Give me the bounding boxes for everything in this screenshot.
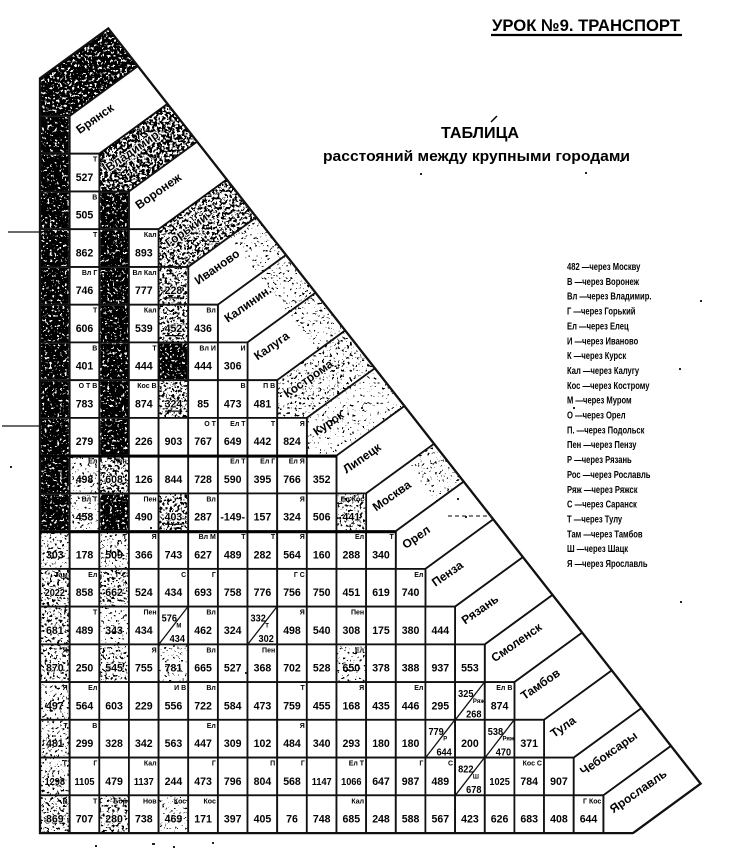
svg-text:Т: Т	[271, 421, 276, 428]
svg-text:168: 168	[342, 700, 360, 712]
svg-text:226: 226	[135, 436, 153, 448]
svg-text:М —через Муром: М —через Муром	[567, 395, 632, 406]
svg-text:Ел: Ел	[414, 685, 423, 692]
svg-text:423: 423	[461, 813, 479, 825]
svg-text:Кос —через Кострому: Кос —через Кострому	[567, 380, 650, 391]
svg-text:352: 352	[313, 473, 331, 485]
svg-text:Вл —через Владимир.: Вл —через Владимир.	[567, 291, 651, 302]
svg-text:748: 748	[313, 813, 331, 825]
svg-text:824: 824	[283, 436, 301, 448]
svg-text:987: 987	[402, 775, 420, 787]
svg-text:Я: Я	[152, 534, 157, 541]
svg-text:Я: Я	[300, 610, 305, 617]
svg-text:473: 473	[194, 775, 212, 787]
svg-text:Ел: Ел	[355, 534, 364, 541]
svg-text:Ел В: Ел В	[496, 685, 512, 692]
svg-text:Т: Т	[63, 723, 68, 730]
svg-text:388: 388	[402, 662, 420, 674]
svg-text:844: 844	[165, 473, 183, 485]
svg-text:В: В	[92, 345, 97, 352]
svg-text:368: 368	[254, 662, 272, 674]
svg-text:903: 903	[165, 436, 183, 448]
svg-text:Вл Г: Вл Г	[82, 270, 97, 277]
svg-text:Пен: Пен	[262, 647, 275, 654]
svg-text:937: 937	[431, 662, 449, 674]
svg-text:Кос В: Кос В	[137, 383, 156, 390]
svg-text:434: 434	[165, 587, 183, 599]
svg-text:228: 228	[165, 285, 183, 297]
svg-text:473: 473	[254, 700, 272, 712]
svg-text:Ел Т: Ел Т	[230, 459, 246, 466]
svg-text:Т: Т	[271, 534, 276, 541]
svg-text:И —через Иваново: И —через Иваново	[567, 335, 639, 346]
svg-text:743: 743	[165, 549, 183, 561]
svg-text:505: 505	[76, 209, 94, 221]
svg-text:Ел: Ел	[88, 572, 97, 579]
svg-text:Нов: Нов	[143, 798, 157, 805]
svg-text:Вл: Вл	[206, 647, 216, 654]
svg-text:279: 279	[76, 436, 94, 448]
svg-text:250: 250	[76, 662, 94, 674]
svg-text:Т: Т	[390, 534, 395, 541]
svg-text:693: 693	[194, 587, 212, 599]
svg-text:Ел: Ел	[355, 647, 364, 654]
svg-text:484: 484	[283, 738, 301, 750]
svg-text:Ел Т: Ел Т	[230, 421, 246, 428]
svg-text:306: 306	[224, 360, 242, 372]
svg-text:309: 309	[224, 738, 242, 750]
svg-text:76: 76	[286, 813, 298, 825]
svg-text:И В: И В	[174, 685, 186, 692]
svg-text:Г: Г	[64, 610, 68, 617]
svg-text:Кал: Кал	[144, 761, 157, 768]
svg-text:395: 395	[254, 473, 272, 485]
svg-text:Р —через Рязань: Р —через Рязань	[567, 454, 632, 465]
svg-text:758: 758	[224, 587, 242, 599]
svg-text:П: П	[270, 761, 275, 768]
svg-text:Г —через Горький: Г —через Горький	[567, 306, 635, 317]
svg-text:722: 722	[194, 700, 212, 712]
svg-text:435: 435	[372, 700, 390, 712]
svg-text:В —через Воронеж: В —через Воронеж	[567, 276, 640, 287]
svg-text:Вл: Вл	[206, 685, 216, 692]
svg-text:Я: Я	[152, 647, 157, 654]
svg-text:759: 759	[283, 700, 301, 712]
svg-text:Я: Я	[300, 723, 305, 730]
svg-text:869: 869	[46, 813, 64, 825]
svg-text:1025: 1025	[489, 776, 510, 787]
svg-text:644: 644	[580, 813, 598, 825]
svg-text:Т: Т	[241, 534, 246, 541]
svg-text:К —через Курск: К —через Курск	[567, 350, 627, 361]
svg-text:401: 401	[76, 360, 94, 372]
svg-text:444: 444	[135, 360, 153, 372]
svg-text:Я —через Ярославль: Я —через Ярославль	[567, 558, 648, 569]
svg-text:441: 441	[342, 511, 360, 523]
svg-text:157: 157	[254, 511, 272, 523]
svg-text:Т —через Тулу: Т —через Тулу	[567, 513, 622, 524]
svg-text:378: 378	[372, 662, 390, 674]
svg-text:490: 490	[135, 511, 153, 523]
svg-text:287: 287	[194, 511, 212, 523]
svg-text:756: 756	[283, 587, 301, 599]
svg-text:280: 280	[105, 813, 123, 825]
svg-text:Г: Г	[301, 761, 305, 768]
svg-text:160: 160	[313, 549, 331, 561]
svg-text:455: 455	[313, 700, 331, 712]
svg-text:Т: Т	[123, 534, 128, 541]
svg-text:665: 665	[194, 662, 212, 674]
svg-text:303: 303	[46, 549, 64, 561]
svg-text:408: 408	[550, 813, 568, 825]
svg-text:371: 371	[520, 738, 538, 750]
svg-text:Вл Кал: Вл Кал	[132, 270, 156, 277]
svg-text:Вл: Вл	[206, 308, 216, 315]
svg-text:738: 738	[135, 813, 153, 825]
svg-text:Т: Т	[93, 798, 98, 805]
svg-text:Пен: Пен	[143, 610, 156, 617]
svg-text:Вл Т: Вл Т	[82, 496, 98, 503]
svg-text:590: 590	[224, 473, 242, 485]
svg-text:178: 178	[76, 549, 94, 561]
svg-text:Ел Г: Ел Г	[260, 459, 275, 466]
svg-text:Ел: Ел	[207, 723, 216, 730]
svg-text:539: 539	[135, 323, 153, 335]
svg-text:Ел: Ел	[88, 685, 97, 692]
svg-text:804: 804	[254, 775, 272, 787]
svg-text:822: 822	[458, 764, 473, 775]
svg-text:Я: Я	[300, 496, 305, 503]
svg-text:Ряж: Ряж	[473, 699, 485, 705]
svg-text:489: 489	[224, 549, 242, 561]
svg-text:171: 171	[194, 813, 212, 825]
svg-text:1066: 1066	[341, 776, 361, 787]
svg-text:Кал —через Калугу: Кал —через Калугу	[567, 365, 639, 376]
svg-text:777: 777	[135, 285, 153, 297]
svg-text:405: 405	[254, 813, 272, 825]
svg-text:Кал: Кал	[144, 308, 157, 315]
svg-text:509: 509	[105, 549, 123, 561]
svg-text:482 —через Москву: 482 —через Москву	[567, 261, 640, 272]
svg-text:325: 325	[458, 689, 474, 700]
svg-text:293: 293	[342, 738, 360, 750]
svg-text:776: 776	[254, 587, 272, 599]
svg-text:553: 553	[461, 662, 479, 674]
svg-text:В: В	[63, 798, 68, 805]
svg-text:662: 662	[105, 587, 123, 599]
svg-text:858: 858	[76, 587, 94, 599]
svg-text:Я: Я	[300, 534, 305, 541]
svg-text:442: 442	[254, 436, 272, 448]
svg-text:564: 564	[283, 549, 301, 561]
svg-text:УРОК №9. ТРАНСПОРТ: УРОК №9. ТРАНСПОРТ	[492, 16, 681, 35]
svg-text:746: 746	[76, 285, 94, 297]
svg-text:862: 862	[76, 247, 94, 259]
svg-text:расстояний между крупными го: расстояний между крупными городами	[323, 149, 630, 165]
svg-text:В: В	[240, 383, 245, 390]
svg-text:Г: Г	[212, 761, 216, 768]
svg-text:Т: Т	[93, 610, 98, 617]
svg-text:627: 627	[194, 549, 212, 561]
svg-text:Пен: Пен	[114, 459, 127, 466]
svg-text:П. —через Подольск: П. —через Подольск	[567, 424, 645, 435]
svg-text:Кос: Кос	[174, 798, 186, 805]
svg-text:180: 180	[372, 738, 390, 750]
svg-text:248: 248	[372, 813, 390, 825]
svg-text:626: 626	[491, 813, 509, 825]
svg-text:893: 893	[135, 247, 153, 259]
svg-text:Там: Там	[55, 572, 68, 579]
svg-text:576: 576	[162, 613, 177, 624]
svg-text:282: 282	[254, 549, 272, 561]
svg-text:606: 606	[76, 323, 94, 335]
svg-text:728: 728	[194, 473, 212, 485]
svg-text:175: 175	[372, 624, 390, 636]
svg-text:Кос: Кос	[204, 798, 216, 805]
svg-text:343: 343	[105, 624, 123, 636]
svg-text:О Т В: О Т В	[79, 383, 98, 390]
svg-text:П В: П В	[263, 383, 275, 390]
svg-text:Я: Я	[359, 685, 364, 692]
svg-text:В: В	[92, 195, 97, 202]
svg-text:Т: Т	[301, 685, 306, 692]
svg-text:Г С: Г С	[294, 572, 305, 579]
svg-text:126: 126	[135, 473, 153, 485]
svg-text:481: 481	[46, 738, 64, 750]
svg-text:498: 498	[283, 624, 301, 636]
svg-text:Ел: Ел	[414, 572, 423, 579]
svg-text:Ел —через Елец: Ел —через Елец	[567, 320, 629, 331]
svg-text:Кал: Кал	[351, 798, 364, 805]
svg-text:870: 870	[46, 662, 64, 674]
svg-text:489: 489	[76, 624, 94, 636]
svg-text:О —через Орел: О —через Орел	[567, 409, 626, 420]
svg-text:324: 324	[165, 398, 183, 410]
svg-text:567: 567	[431, 813, 449, 825]
svg-text:540: 540	[313, 624, 331, 636]
svg-text:588: 588	[402, 813, 420, 825]
svg-text:649: 649	[224, 436, 242, 448]
svg-text:Пен —через Пензу: Пен —через Пензу	[567, 439, 636, 450]
svg-text:740: 740	[402, 587, 420, 599]
svg-text:683: 683	[520, 813, 538, 825]
svg-text:498: 498	[76, 473, 94, 485]
svg-text:Ел Т: Ел Т	[349, 761, 365, 768]
svg-text:447: 447	[194, 738, 212, 750]
svg-text:564: 564	[76, 700, 94, 712]
svg-text:324: 324	[224, 624, 242, 636]
svg-text:299: 299	[76, 738, 94, 750]
svg-text:527: 527	[76, 172, 94, 184]
svg-text:С —через Саранск: С —через Саранск	[567, 499, 637, 510]
svg-text:Кос С: Кос С	[523, 761, 542, 768]
svg-text:568: 568	[283, 775, 301, 787]
svg-text:444: 444	[431, 624, 449, 636]
svg-text:397: 397	[224, 813, 242, 825]
svg-text:Пен: Пен	[143, 496, 156, 503]
svg-text:481: 481	[254, 398, 272, 410]
svg-text:Г С: Г С	[116, 572, 127, 579]
svg-text:Кал: Кал	[144, 232, 157, 239]
svg-text:Рос —через Рославль: Рос —через Рославль	[567, 469, 651, 480]
svg-text:506: 506	[313, 511, 331, 523]
svg-text:-149-: -149-	[220, 511, 245, 523]
svg-text:332: 332	[251, 613, 266, 624]
svg-text:Ряж: Ряж	[503, 737, 515, 743]
svg-text:489: 489	[431, 775, 449, 787]
svg-text:702: 702	[283, 662, 301, 674]
svg-text:В: В	[92, 723, 97, 730]
svg-text:О Т: О Т	[204, 421, 216, 428]
svg-text:528: 528	[313, 662, 331, 674]
svg-text:Вл М: Вл М	[199, 534, 216, 541]
svg-text:874: 874	[135, 398, 153, 410]
svg-text:328: 328	[105, 738, 123, 750]
svg-text:685: 685	[342, 813, 360, 825]
svg-text:Я: Я	[300, 421, 305, 428]
svg-text:Я: Я	[63, 685, 68, 692]
svg-text:340: 340	[372, 549, 390, 561]
svg-text:446: 446	[402, 700, 420, 712]
svg-text:619: 619	[372, 587, 390, 599]
svg-text:767: 767	[194, 436, 212, 448]
svg-text:Г: Г	[419, 761, 423, 768]
svg-text:Там —через Тамбов: Там —через Тамбов	[567, 528, 643, 539]
svg-text:С: С	[448, 761, 453, 768]
svg-text:603: 603	[105, 700, 123, 712]
svg-text:Т: Т	[152, 345, 157, 352]
svg-text:451: 451	[342, 587, 360, 599]
svg-text:295: 295	[431, 700, 449, 712]
svg-text:781: 781	[165, 662, 183, 674]
svg-text:681: 681	[46, 624, 64, 636]
svg-text:Ряж —через Ряжск: Ряж —через Ряжск	[567, 484, 638, 495]
svg-text:366: 366	[135, 549, 153, 561]
svg-text:755: 755	[135, 662, 153, 674]
svg-text:527: 527	[224, 662, 242, 674]
svg-text:И: И	[240, 345, 245, 352]
svg-text:Г: Г	[64, 761, 68, 768]
svg-text:403: 403	[165, 511, 183, 523]
svg-text:380: 380	[402, 624, 420, 636]
svg-text:Г Кос: Г Кос	[583, 798, 601, 805]
svg-text:229: 229	[135, 700, 153, 712]
svg-text:288: 288	[342, 549, 360, 561]
svg-text:Вл И: Вл И	[199, 345, 215, 352]
svg-text:444: 444	[194, 360, 212, 372]
svg-text:Г: Г	[93, 761, 97, 768]
svg-text:Т: Т	[93, 308, 98, 315]
svg-text:244: 244	[165, 775, 183, 787]
svg-text:342: 342	[135, 738, 153, 750]
svg-text:Р: Р	[443, 737, 447, 743]
svg-text:784: 784	[520, 775, 538, 787]
svg-text:650: 650	[342, 662, 360, 674]
svg-text:Г: Г	[212, 572, 216, 579]
svg-text:308: 308	[342, 624, 360, 636]
svg-text:Т: Т	[93, 157, 98, 164]
svg-text:Ел Я: Ел Я	[289, 459, 305, 466]
svg-text:563: 563	[165, 738, 183, 750]
svg-text:2022: 2022	[45, 588, 65, 599]
svg-text:584: 584	[224, 700, 242, 712]
svg-text:102: 102	[254, 738, 272, 750]
svg-text:907: 907	[550, 775, 568, 787]
svg-text:85: 85	[197, 398, 209, 410]
svg-text:545: 545	[105, 662, 123, 674]
svg-text:Т: Т	[265, 623, 269, 629]
svg-text:1105: 1105	[75, 776, 96, 787]
svg-text:Бор: Бор	[113, 798, 127, 805]
svg-text:Я: Я	[63, 647, 68, 654]
svg-text:783: 783	[76, 398, 94, 410]
svg-text:473: 473	[224, 398, 242, 410]
svg-text:479: 479	[105, 775, 123, 787]
svg-text:С: С	[181, 572, 186, 579]
svg-text:434: 434	[135, 624, 153, 636]
svg-text:Т: Т	[93, 232, 98, 239]
svg-text:608: 608	[105, 473, 123, 485]
svg-text:Ш: Ш	[473, 774, 479, 780]
svg-text:436: 436	[194, 323, 212, 335]
svg-text:469: 469	[165, 813, 183, 825]
svg-text:524: 524	[135, 587, 153, 599]
svg-text:Ш —через Шацк: Ш —через Шацк	[567, 543, 629, 554]
svg-text:ТАБЛИЦА: ТАБЛИЦА	[441, 125, 519, 142]
svg-text:874: 874	[491, 700, 509, 712]
svg-text:707: 707	[76, 813, 94, 825]
svg-text:779: 779	[428, 727, 443, 738]
svg-text:200: 200	[461, 738, 479, 750]
svg-text:Вл: Вл	[206, 496, 216, 503]
svg-text:458: 458	[76, 511, 94, 523]
svg-text:180: 180	[402, 738, 420, 750]
svg-text:340: 340	[313, 738, 331, 750]
svg-text:324: 324	[283, 511, 301, 523]
svg-text:1298: 1298	[45, 776, 66, 787]
svg-text:796: 796	[224, 775, 242, 787]
svg-text:Вл: Вл	[206, 610, 216, 617]
svg-text:556: 556	[165, 700, 183, 712]
svg-text:452: 452	[165, 323, 183, 335]
svg-text:538: 538	[488, 727, 504, 738]
svg-text:Ел: Ел	[88, 459, 97, 466]
svg-text:766: 766	[283, 473, 301, 485]
svg-text:1137: 1137	[134, 776, 154, 787]
svg-text:Ел Кос: Ел Кос	[341, 496, 365, 503]
svg-text:750: 750	[313, 587, 331, 599]
svg-text:М: М	[176, 623, 181, 629]
svg-text:1147: 1147	[312, 776, 332, 787]
svg-text:647: 647	[372, 775, 390, 787]
svg-text:Пен: Пен	[351, 610, 364, 617]
svg-text:497: 497	[46, 700, 64, 712]
svg-text:462: 462	[194, 624, 212, 636]
